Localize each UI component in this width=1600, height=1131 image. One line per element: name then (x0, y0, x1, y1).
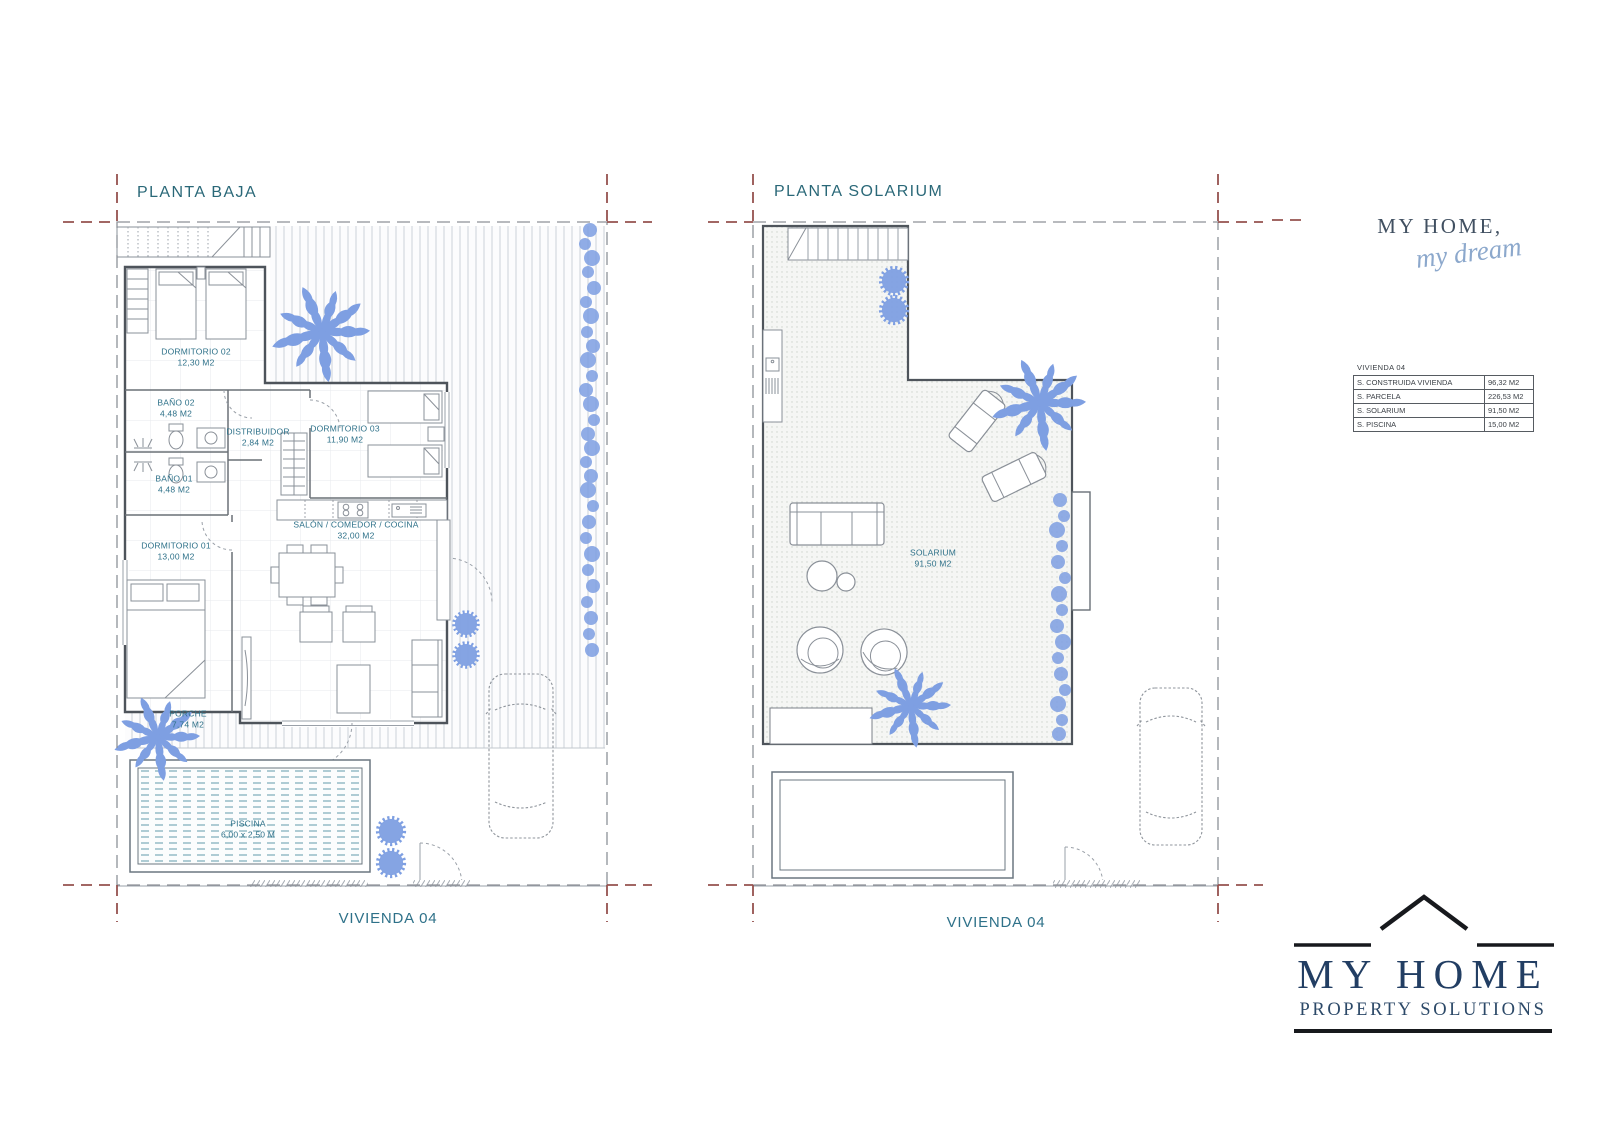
room-area: 11,90 M2 (327, 434, 363, 444)
room-name: PORCHE (169, 709, 207, 719)
table-row: S. PISCINA 15,00 M2 (1354, 418, 1534, 432)
wall-niche (1072, 492, 1090, 610)
room-area: 4,48 M2 (160, 408, 192, 418)
plan-title-solarium: PLANTA SOLARIUM (774, 183, 943, 201)
room-label-porche: PORCHE 7,74 M2 (169, 709, 207, 730)
room-area: 32,00 M2 (337, 530, 374, 540)
pool-outline (772, 772, 1013, 878)
bedroom2-furniture (127, 267, 246, 339)
summary-row-label: S. SOLARIUM (1354, 404, 1485, 418)
room-name: PISCINA (230, 819, 265, 829)
car-outline (1137, 688, 1205, 845)
plan-title-baja: PLANTA BAJA (137, 184, 257, 202)
pool (130, 760, 370, 872)
room-area: 2,84 M2 (242, 437, 274, 447)
room-area: 12,30 M2 (177, 357, 214, 367)
room-area: 91,50 M2 (914, 558, 951, 568)
room-label-salon: SALÓN / COMEDOR / COCINA 32,00 M2 (293, 520, 418, 541)
room-name: BAÑO 02 (157, 398, 194, 408)
solarium-stairs (788, 228, 908, 260)
bush-icon (378, 850, 404, 876)
room-area: 7,74 M2 (172, 719, 204, 729)
room-name: DORMITORIO 01 (141, 541, 211, 551)
room-label-dormitorio-01: DORMITORIO 01 13,00 M2 (141, 541, 211, 562)
solar-heater (763, 330, 782, 422)
plan-sheet: PLANTA BAJA PLANTA SOLARIUM VIVIENDA 04 … (0, 0, 1600, 1131)
plan-footer-baja: VIVIENDA 04 (339, 910, 438, 927)
room-label-bano-02: BAÑO 02 4,48 M2 (157, 398, 194, 419)
room-name: DORMITORIO 03 (310, 424, 380, 434)
room-label-solarium: SOLARIUM 91,50 M2 (910, 548, 956, 569)
summary-row-value: 96,32 M2 (1485, 376, 1534, 390)
table-row: S. SOLARIUM 91,50 M2 (1354, 404, 1534, 418)
room-name: BAÑO 01 (155, 474, 192, 484)
bedroom1-furniture (127, 580, 205, 698)
room-name: SOLARIUM (910, 548, 956, 558)
summary-row-label: S. CONSTRUIDA VIVIENDA (1354, 376, 1485, 390)
plan-footer-solarium: VIVIENDA 04 (947, 914, 1046, 931)
summary-row-label: S. PISCINA (1354, 418, 1485, 432)
room-label-distribuidor: DISTRIBUIDOR 2,84 M2 (226, 427, 289, 448)
planter-box (770, 708, 872, 744)
brand-logo-name: MY HOME (1290, 950, 1556, 998)
summary-row-value: 15,00 M2 (1485, 418, 1534, 432)
summary-row-value: 91,50 M2 (1485, 404, 1534, 418)
room-area: 4,48 M2 (158, 484, 190, 494)
table-row: S. CONSTRUIDA VIVIENDA 96,32 M2 (1354, 376, 1534, 390)
summary-row-value: 226,53 M2 (1485, 390, 1534, 404)
room-name: DORMITORIO 02 (161, 347, 231, 357)
room-label-dormitorio-02: DORMITORIO 02 12,30 M2 (161, 347, 231, 368)
area-summary: VIVIENDA 04 S. CONSTRUIDA VIVIENDA 96,32… (1353, 363, 1534, 432)
bush-icon (378, 818, 404, 844)
summary-table: S. CONSTRUIDA VIVIENDA 96,32 M2 S. PARCE… (1353, 375, 1534, 432)
room-label-dormitorio-03: DORMITORIO 03 11,90 M2 (310, 424, 380, 445)
room-area: 6,00 x 2,50 M (221, 829, 275, 839)
brand-logo-bottom: MY HOME PROPERTY SOLUTIONS (1290, 878, 1556, 1033)
room-area: 13,00 M2 (157, 551, 194, 561)
room-name: SALÓN / COMEDOR / COCINA (293, 520, 418, 530)
room-label-piscina: PISCINA 6,00 x 2,50 M (221, 819, 275, 840)
summary-row-label: S. PARCELA (1354, 390, 1485, 404)
room-label-bano-01: BAÑO 01 4,48 M2 (155, 474, 192, 495)
brand-logo-tagline: PROPERTY SOLUTIONS (1290, 1000, 1556, 1021)
planta-solarium-plan (753, 226, 1218, 888)
brand-logo-underline (1294, 1029, 1552, 1033)
summary-title: VIVIENDA 04 (1357, 363, 1534, 372)
brand-wordmark-top: MY HOME, my dream (1330, 214, 1550, 272)
room-name: DISTRIBUIDOR (226, 427, 289, 437)
stairs (117, 227, 270, 257)
table-row: S. PARCELA 226,53 M2 (1354, 390, 1534, 404)
